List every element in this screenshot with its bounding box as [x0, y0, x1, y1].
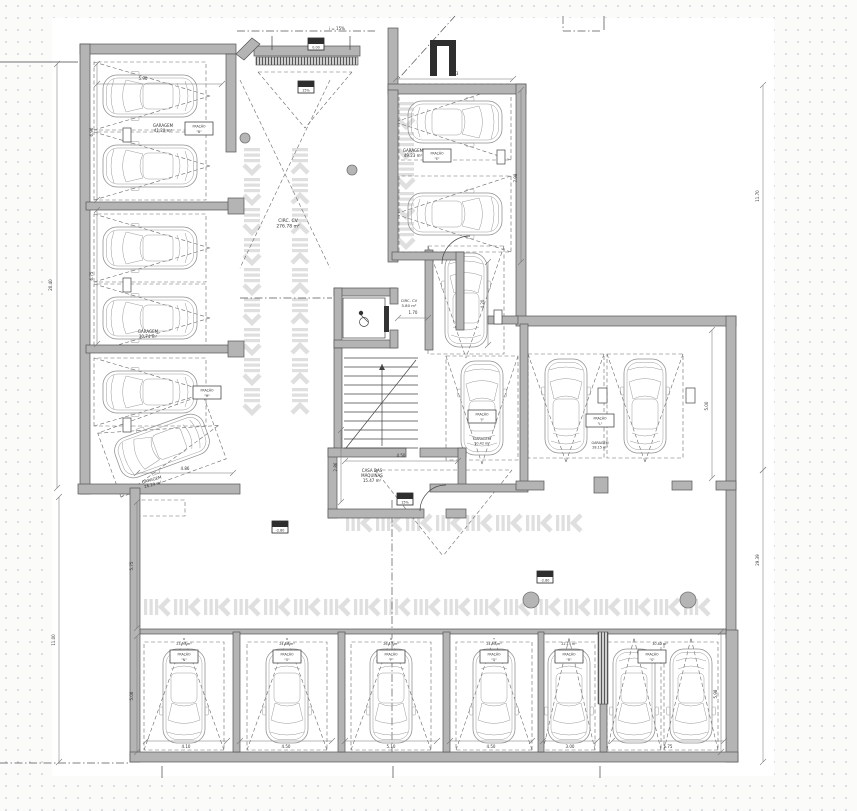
wall — [328, 448, 337, 518]
lane-bar — [244, 189, 260, 192]
lane-bar — [398, 192, 414, 195]
floor-plan-page: 20.4011.005.755.0611.7029.396.337.985.00… — [0, 0, 857, 811]
lane-bar — [442, 515, 445, 531]
wall — [338, 632, 345, 752]
dimension-label: 5.10 — [387, 744, 396, 749]
room-label: 30.82 m² — [652, 642, 668, 646]
lane-bar — [292, 339, 308, 342]
dimension-label: 4.86 — [181, 466, 190, 471]
grating-strip — [598, 632, 608, 704]
room-label: CIRC. CV5.80 m² — [401, 298, 418, 308]
lane-bar — [365, 599, 368, 615]
lane-bar — [244, 369, 260, 372]
lane-bar — [556, 515, 559, 531]
room-label-line: 24.86 m² — [279, 642, 295, 646]
lane-bar — [398, 108, 414, 111]
dimension-label: 6.75 — [89, 271, 94, 280]
lane-bar — [292, 309, 308, 312]
dimension-label: 6.96 — [89, 127, 94, 136]
lane-bar — [244, 364, 260, 367]
wall — [443, 632, 450, 752]
lane-bar — [244, 244, 260, 247]
lane-bar — [496, 515, 499, 531]
lane-bar — [244, 298, 260, 301]
room-label-line: CIRC. CV — [278, 218, 299, 224]
fraction-tag-title: FRAÇÃO — [563, 652, 576, 657]
lane-bar — [292, 388, 308, 391]
room-label-line: 276.78 m² — [276, 224, 300, 230]
wall — [726, 630, 738, 762]
lane-bar — [324, 599, 327, 615]
dimension-label: 6.33 — [450, 71, 459, 76]
dimension-label: 4.50 — [397, 453, 406, 458]
wall — [226, 54, 236, 152]
lane-bar — [244, 159, 260, 162]
lane-bar — [244, 238, 260, 241]
lane-bar — [537, 515, 540, 531]
wall — [726, 316, 736, 638]
room-label: GARAGEM10.42 m² — [473, 437, 490, 445]
wall — [716, 481, 736, 490]
lane-bar — [605, 599, 608, 615]
lane-bar — [502, 515, 505, 531]
lane-bar — [567, 515, 570, 531]
lane-bar — [624, 599, 627, 615]
dimension-label: 5.00 — [704, 401, 709, 410]
lane-bar — [398, 143, 414, 146]
fraction-tag-letter: "M" — [204, 394, 210, 398]
lane-bar — [398, 162, 414, 165]
dimension-label: 5.98 — [713, 689, 718, 698]
lane-bar — [292, 328, 308, 331]
room-label-line: i = 15% — [329, 26, 345, 31]
room-label-line: 28.15 m² — [592, 445, 608, 449]
dimension-label: 5.75 — [129, 561, 134, 570]
lane-bar — [244, 154, 260, 157]
lane-bar — [292, 184, 308, 187]
lane-bar — [244, 249, 260, 252]
lane-bar — [292, 268, 308, 271]
wall — [254, 46, 360, 56]
room-label-line: 30.82 m² — [652, 642, 668, 646]
room-label: i = 15% — [329, 26, 345, 31]
wall — [516, 481, 544, 490]
wall — [538, 632, 544, 752]
level-marker-value: -2.80 — [276, 529, 285, 533]
lane-bar — [654, 599, 657, 615]
wall — [392, 252, 464, 260]
wall — [425, 250, 433, 350]
dimension-label: 4.50 — [282, 744, 291, 749]
lane-bar — [477, 515, 480, 531]
wall — [334, 340, 396, 348]
dimension-label: 29.39 — [755, 554, 760, 566]
lane-bar — [264, 599, 267, 615]
dimension-label: 4.20 — [480, 299, 485, 308]
lane-bar — [244, 328, 260, 331]
lane-bar — [354, 599, 357, 615]
fraction-tag-title: FRAÇÃO — [178, 652, 191, 657]
wall — [130, 488, 140, 762]
lane-bar — [244, 388, 260, 391]
wall — [80, 44, 236, 54]
lane-bar — [425, 599, 428, 615]
dimension-label: 3.00 — [566, 744, 575, 749]
lane-bar — [292, 148, 308, 151]
lane-bar — [384, 599, 387, 615]
lane-bar — [174, 599, 177, 615]
wall — [228, 198, 244, 214]
lane-bar — [526, 515, 529, 531]
lane-bar — [292, 399, 308, 402]
dimension-label: 4.50 — [487, 744, 496, 749]
lane-bar — [240, 599, 243, 615]
dimension-label: 1.70 — [409, 310, 418, 315]
wall — [233, 632, 240, 752]
lane-bar — [292, 208, 308, 211]
dimension-label: 11.00 — [51, 634, 56, 646]
wall — [456, 252, 464, 330]
lane-bar — [398, 102, 414, 105]
lane-bar — [395, 599, 398, 615]
lane-bar — [185, 599, 188, 615]
wall — [334, 288, 342, 348]
fraction-tag-title: FRAÇÃO — [476, 412, 489, 417]
lane-bar — [564, 599, 567, 615]
lane-bar — [275, 599, 278, 615]
elevator-door — [384, 306, 389, 332]
round-column — [347, 165, 357, 175]
lane-bar — [485, 599, 488, 615]
lane-bar — [510, 599, 513, 615]
room-label-line: 5.80 m² — [402, 303, 417, 308]
lane-bar — [215, 599, 218, 615]
room-label-line: GARAGEM — [591, 441, 608, 445]
lane-bar — [244, 279, 260, 282]
round-column — [680, 592, 696, 608]
fraction-tag-letter: "N" — [181, 658, 187, 662]
fraction-tag-title: FRAÇÃO — [646, 652, 659, 657]
fraction-tag-letter: "S" — [650, 658, 655, 662]
fraction-tag-title: FRAÇÃO — [385, 652, 398, 657]
lane-bar — [244, 219, 260, 222]
lane-bar — [292, 178, 308, 181]
dimension-label: 2.86 — [333, 462, 338, 471]
wall — [516, 316, 736, 326]
room-label-line: 22.15 m² — [561, 642, 577, 646]
lane-bar — [660, 599, 663, 615]
lane-bar — [150, 599, 153, 615]
entrance-portal — [430, 40, 456, 46]
wall — [328, 448, 406, 457]
fraction-tag-title: FRAÇÃO — [201, 388, 214, 393]
dimension-label: 20.40 — [48, 279, 53, 291]
lane-bar — [575, 599, 578, 615]
lane-bar — [294, 599, 297, 615]
lane-bar — [398, 233, 414, 236]
fraction-tag-letter: "Q" — [491, 658, 497, 662]
wall — [390, 288, 398, 304]
room-label: CASA DASMÁQUINAS15.47 m² — [361, 468, 383, 483]
room-label: 22.15 m² — [561, 642, 577, 646]
wall — [446, 509, 466, 518]
level-marker-fill — [537, 571, 553, 577]
room-label: 24.90 m² — [486, 642, 502, 646]
lane-bar — [507, 515, 510, 531]
room-label: GARAGEM41.20 m² — [153, 123, 174, 133]
lane-bar — [292, 364, 308, 367]
grating-strip — [256, 57, 358, 65]
dimension-label: 4.10 — [182, 744, 191, 749]
lane-bar — [244, 304, 260, 307]
wall — [672, 481, 692, 490]
lane-bar — [398, 132, 414, 135]
lane-bar — [244, 178, 260, 181]
structural-column — [686, 388, 695, 403]
lane-bar — [562, 515, 565, 531]
lane-bar — [594, 599, 597, 615]
lane-bar — [244, 274, 260, 277]
wall — [388, 28, 398, 90]
room-label: 26.15 m² — [383, 642, 399, 646]
wall — [80, 44, 90, 494]
level-marker-fill — [298, 81, 314, 87]
fraction-tag-title: FRAÇÃO — [281, 652, 294, 657]
room-label: CIRC. CV276.78 m² — [276, 218, 300, 230]
lane-bar — [244, 184, 260, 187]
structural-column — [123, 128, 131, 142]
lane-bar — [292, 358, 308, 361]
dimension-label: 7.98 — [513, 173, 518, 182]
room-label-line: 10.42 m² — [474, 441, 490, 445]
lane-bar — [398, 168, 414, 171]
lane-bar — [292, 298, 308, 301]
lane-bar — [292, 334, 308, 337]
room-label-line: 15.47 m² — [363, 478, 382, 483]
room-label-line: 30.74 m² — [139, 334, 158, 339]
lane-bar — [600, 599, 603, 615]
room-label-line: GARAGEM — [473, 437, 490, 441]
lane-bar — [420, 599, 423, 615]
level-marker-value: -2.80 — [541, 579, 550, 583]
dimension-label: 5.75 — [664, 744, 673, 749]
wall — [388, 90, 398, 262]
structural-column — [123, 418, 131, 432]
wall — [488, 316, 518, 324]
lane-bar — [570, 599, 573, 615]
lane-bar — [245, 599, 248, 615]
lane-bar — [292, 274, 308, 277]
wall — [390, 330, 398, 348]
lane-bar — [414, 599, 417, 615]
lane-bar — [444, 599, 447, 615]
room-label-line: 24.90 m² — [486, 642, 502, 646]
wall — [388, 84, 526, 94]
lane-bar — [480, 599, 483, 615]
wall — [140, 629, 726, 634]
lane-bar — [545, 599, 548, 615]
lane-bar — [466, 515, 469, 531]
wall — [228, 341, 244, 357]
dimension-label: 5.90 — [139, 76, 148, 81]
room-label-line: 41.20 m² — [154, 128, 173, 133]
fraction-tag-title: FRAÇÃO — [488, 652, 501, 657]
wheelchair-icon — [359, 311, 363, 315]
lane-bar — [635, 599, 638, 615]
fraction-tag-letter: "J" — [480, 418, 484, 422]
room-label-line: 23.95 m² — [176, 642, 192, 646]
wall — [458, 448, 466, 488]
lane-bar — [234, 599, 237, 615]
fraction-tag-letter: "E" — [435, 157, 440, 161]
lane-bar — [305, 599, 308, 615]
lane-bar — [244, 394, 260, 397]
lane-bar — [532, 515, 535, 531]
lane-bar — [155, 599, 158, 615]
lane-bar — [244, 339, 260, 342]
lane-bar — [630, 599, 633, 615]
lane-bar — [180, 599, 183, 615]
fraction-tag-letter: "P" — [389, 658, 394, 662]
dimension-label: 5.06 — [129, 691, 134, 700]
lane-bar — [292, 279, 308, 282]
lane-bar — [292, 189, 308, 192]
round-column — [240, 133, 250, 143]
lane-bar — [244, 214, 260, 217]
lane-bar — [436, 515, 439, 531]
structural-column — [123, 278, 131, 292]
lane-bar — [244, 358, 260, 361]
fraction-tag-title: FRAÇÃO — [193, 124, 206, 129]
room-label: GARAGEM30.74 m² — [138, 329, 159, 339]
level-marker-value: 0.00 — [312, 46, 320, 50]
wall — [594, 477, 608, 493]
lane-bar — [244, 268, 260, 271]
lane-bar — [292, 394, 308, 397]
wall — [334, 288, 396, 296]
lane-bar — [244, 148, 260, 151]
structural-column — [494, 310, 502, 324]
lane-bar — [292, 304, 308, 307]
room-label: GARAGEM28.15 m² — [591, 441, 608, 449]
lane-bar — [455, 599, 458, 615]
structural-column — [497, 150, 505, 164]
level-marker-fill — [397, 493, 413, 499]
room-label: 24.86 m² — [279, 642, 295, 646]
fraction-tag-title: FRAÇÃO — [594, 416, 607, 421]
wall — [78, 484, 240, 494]
wall — [130, 752, 738, 762]
lane-bar — [244, 334, 260, 337]
lane-bar — [292, 249, 308, 252]
wall — [328, 509, 424, 518]
lane-bar — [292, 369, 308, 372]
lane-bar — [210, 599, 213, 615]
lane-bar — [292, 154, 308, 157]
wall — [86, 202, 232, 210]
lane-bar — [300, 599, 303, 615]
room-label: 23.95 m² — [176, 642, 192, 646]
fraction-tag-title: FRAÇÃO — [431, 151, 444, 156]
lane-bar — [244, 399, 260, 402]
lane-bar — [144, 599, 147, 615]
wall — [600, 704, 607, 752]
lane-bar — [474, 599, 477, 615]
room-label-line: 49.23 m² — [404, 153, 423, 158]
fraction-tag-letter: "O" — [284, 658, 290, 662]
fraction-tag-letter: "B" — [196, 130, 202, 134]
level-marker-fill — [272, 521, 288, 527]
wall — [86, 345, 232, 353]
lane-bar — [292, 238, 308, 241]
lane-bar — [292, 244, 308, 247]
structural-column — [598, 388, 607, 403]
lane-bar — [450, 599, 453, 615]
lane-bar — [292, 159, 308, 162]
lane-bar — [504, 599, 507, 615]
lane-bar — [244, 309, 260, 312]
fraction-tag-letter: "R" — [566, 658, 572, 662]
room-label-line: 26.15 m² — [383, 642, 399, 646]
lane-bar — [270, 599, 273, 615]
lane-bar — [540, 599, 543, 615]
dimension-label: 11.70 — [755, 190, 760, 202]
lane-bar — [335, 599, 338, 615]
lane-bar — [244, 208, 260, 211]
lane-bar — [292, 214, 308, 217]
lane-bar — [360, 599, 363, 615]
level-marker-fill — [308, 38, 324, 44]
level-marker-value: 15% — [302, 89, 310, 93]
lane-bar — [515, 599, 518, 615]
lane-bar — [330, 599, 333, 615]
fraction-tag-letter: "L" — [598, 422, 603, 426]
room-label: GARAGEM49.23 m² — [403, 148, 424, 158]
lane-bar — [204, 599, 207, 615]
floor-plan-drawing: 20.4011.005.755.0611.7029.396.337.985.00… — [0, 0, 857, 811]
level-marker-value: 15% — [401, 501, 409, 505]
round-column — [523, 592, 539, 608]
wall — [520, 324, 528, 490]
lane-bar — [665, 599, 668, 615]
